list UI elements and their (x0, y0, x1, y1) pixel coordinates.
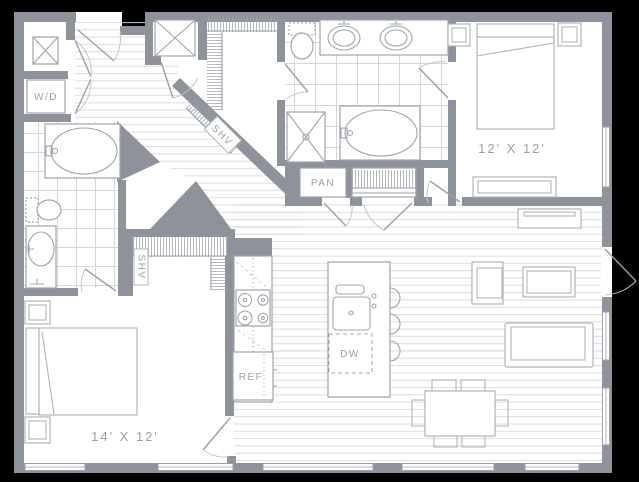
bottom-window (158, 464, 233, 471)
sofa (505, 323, 593, 367)
armchair (472, 262, 503, 304)
second-bedroom-dimensions: 14' X 12' (91, 429, 159, 444)
double-vanity (320, 20, 448, 55)
dishwasher-label: DW (340, 349, 360, 360)
primary-bedroom-dimensions: 12' X 12' (478, 141, 546, 156)
washer-dryer-label: W/D (34, 92, 58, 103)
nightstand (25, 301, 50, 324)
pantry-label: PAN (311, 178, 335, 189)
toilet-2 (26, 198, 61, 222)
mechanical-unit (33, 37, 58, 64)
bedroom2-shelf-label: SHV (136, 254, 147, 279)
dresser (473, 177, 556, 197)
bottom-window (25, 464, 85, 471)
stove (236, 290, 270, 326)
floor-plan: SHV SHV (0, 0, 639, 482)
bedroom-window (603, 127, 610, 187)
walk-in-rod-top (207, 16, 279, 32)
bed-2 (26, 328, 137, 415)
bed-primary (477, 24, 554, 129)
vanity-2 (26, 226, 56, 288)
living-window (603, 312, 610, 360)
floor-plan-page: SHV SHV (0, 0, 639, 482)
nightstand (448, 24, 470, 46)
toilet-primary (289, 23, 315, 59)
nightstand (25, 417, 50, 443)
bottom-window (263, 464, 373, 471)
living-window (603, 388, 610, 445)
coffee-table (523, 267, 575, 297)
bottom-window (402, 464, 494, 471)
bathtub-2 (45, 124, 120, 178)
hvac-closet-unit (155, 20, 195, 56)
media-console (518, 209, 581, 228)
walk-in-rod-left (207, 32, 223, 110)
kitchen-island (328, 262, 390, 397)
refrigerator-label: REF (239, 372, 264, 383)
bottom-window (525, 464, 579, 471)
nightstand (558, 23, 581, 46)
shower (287, 112, 325, 162)
bathtub-primary (340, 106, 420, 160)
